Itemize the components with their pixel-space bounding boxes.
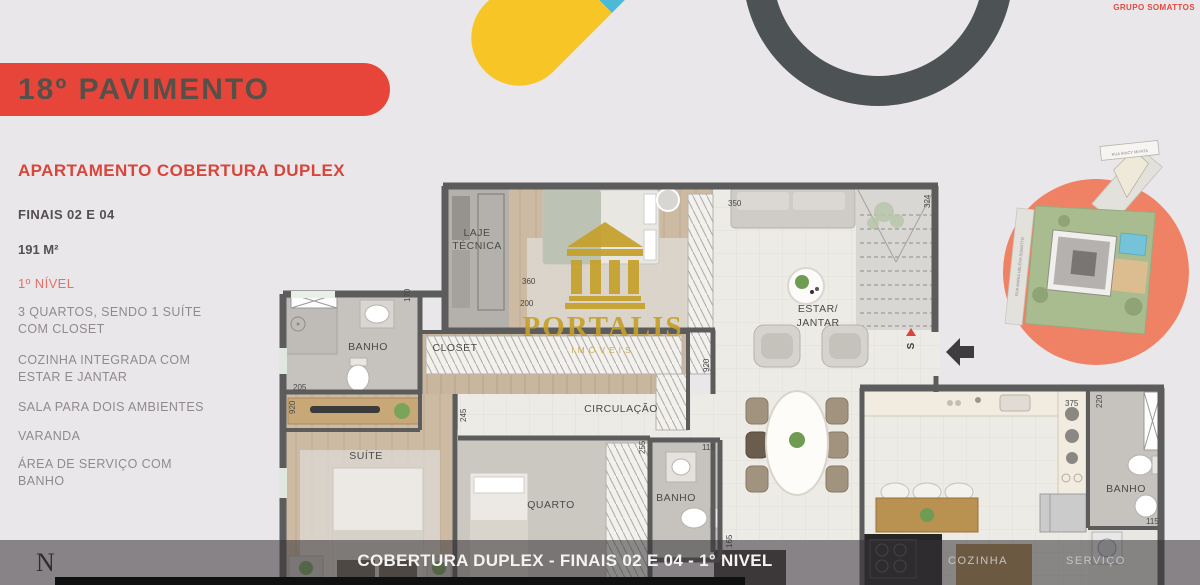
sofa xyxy=(731,188,855,228)
yellow-blue-pill-shape xyxy=(451,0,704,106)
dim-920-estar: 920 xyxy=(702,358,711,372)
dim-350: 350 xyxy=(728,199,742,208)
window xyxy=(291,291,335,298)
dim-255: 255 xyxy=(638,440,647,454)
room-label-closet: CLOSET xyxy=(432,342,477,354)
dim-115-servico: 115 xyxy=(1146,517,1159,526)
floor-banner-title: 18º PAVIMENTO xyxy=(18,63,270,116)
dining-set xyxy=(746,391,848,495)
floor-banner: 18º PAVIMENTO xyxy=(0,63,390,116)
room-label-banho-suite: BANHO xyxy=(348,341,388,353)
plan-caption: COBERTURA DUPLEX - FINAIS 02 E 04 - 1° N… xyxy=(357,551,772,571)
suite-wardrobe xyxy=(688,194,713,374)
room-label-laje: LAJE xyxy=(463,227,490,239)
room-label-jantar: JANTAR xyxy=(796,317,839,329)
stairs-s-label: S xyxy=(906,342,917,349)
dim-170: 170 xyxy=(403,288,412,302)
brand-text: GRUPO SOMATTOS xyxy=(1113,3,1195,12)
room-label-laje2: TÉCNICA xyxy=(452,239,502,252)
apartment-level: 1º NÍVEL xyxy=(18,276,74,291)
dim-245: 245 xyxy=(459,408,468,422)
dim-115-banho: 115 xyxy=(702,443,715,452)
gray-ring-shape xyxy=(743,0,1013,106)
apartment-area: 191 M² xyxy=(18,242,58,257)
dim-220: 220 xyxy=(1095,394,1104,408)
feature-item: VARANDA xyxy=(18,428,258,445)
feature-item: 3 QUARTOS, SENDO 1 SUÍTE COM CLOSET xyxy=(18,304,258,337)
room-label-servico: SERVIÇO xyxy=(1066,555,1126,567)
dim-920-left: 920 xyxy=(288,400,297,414)
room-label-circulacao: CIRCULAÇÃO xyxy=(584,402,658,415)
room-label-banho-servico: BANHO xyxy=(1106,483,1146,495)
room-label-suite: SUÍTE xyxy=(349,449,382,462)
window xyxy=(279,468,287,498)
dim-324: 324 xyxy=(923,194,932,208)
window xyxy=(279,348,287,374)
dim-205: 205 xyxy=(293,383,307,392)
apartment-title: APARTAMENTO COBERTURA DUPLEX xyxy=(18,161,438,181)
feature-item: ÁREA DE SERVIÇO COM BANHO xyxy=(18,456,258,489)
watermark-subtitle: IMÓVEIS xyxy=(571,345,634,355)
watermark-title: PORTALIS xyxy=(522,311,683,343)
feature-item: SALA PARA DOIS AMBIENTES xyxy=(18,399,258,416)
dim-360: 360 xyxy=(522,277,536,286)
slide: GRUPO SOMATTOS 18º PAVIMENTO APARTAMENTO… xyxy=(0,0,1200,585)
dim-200: 200 xyxy=(520,299,534,308)
feature-item: COZINHA INTEGRADA COM ESTAR E JANTAR xyxy=(18,352,258,385)
suite-sideboard xyxy=(288,398,420,424)
apartment-units: FINAIS 02 E 04 xyxy=(18,207,115,222)
entry-arrow-icon xyxy=(946,338,974,366)
dim-375: 375 xyxy=(1065,399,1079,408)
compass-north-label: N xyxy=(36,548,55,578)
room-label-estar: ESTAR/ xyxy=(798,303,838,315)
room-label-quarto: QUARTO xyxy=(527,499,575,511)
floorplan: S LAJE TÉCNICA BANHO CLOSET SUÍTE QUARTO… xyxy=(275,180,1170,585)
suite-mirror xyxy=(657,189,679,211)
kitchen-island xyxy=(876,483,978,532)
bottom-black-strip xyxy=(55,577,745,585)
room-label-banho-social: BANHO xyxy=(656,492,696,504)
coffee-table xyxy=(788,268,824,304)
room-label-cozinha: COZINHA xyxy=(948,555,1008,567)
closet-wardrobe-side xyxy=(656,374,688,430)
